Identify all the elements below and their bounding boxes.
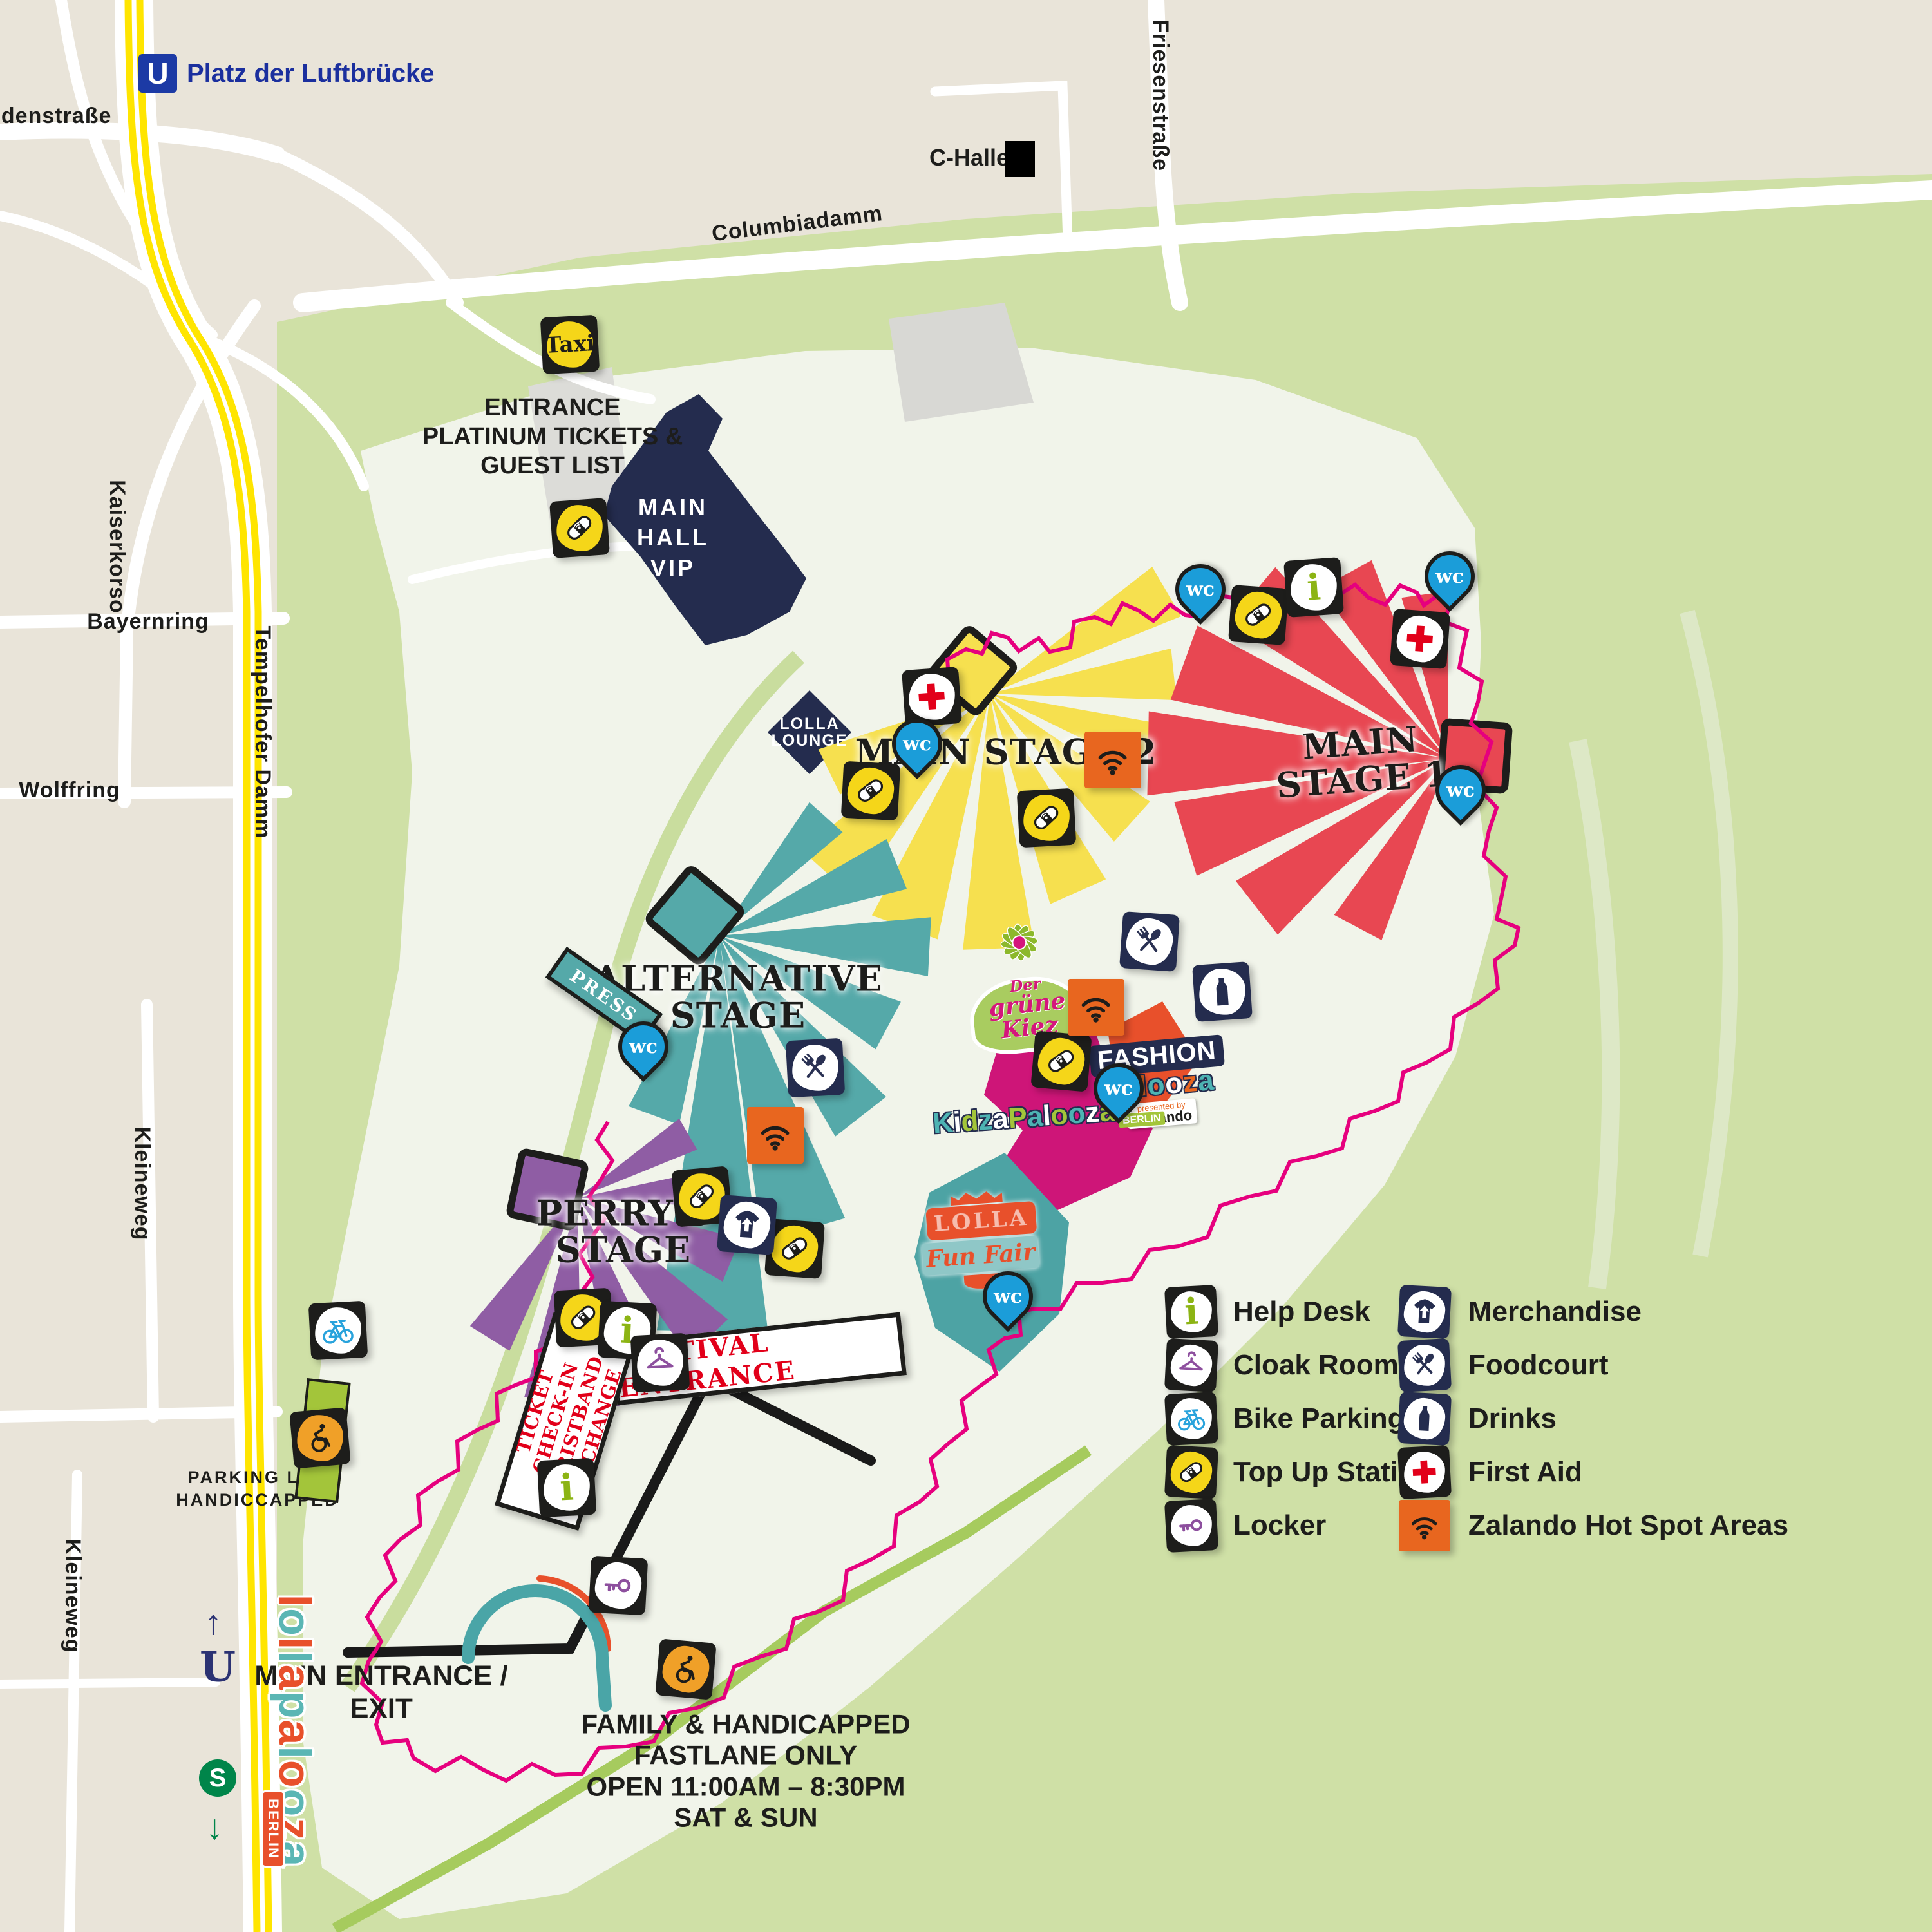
perrys-line2: STAGE — [536, 1231, 711, 1268]
taxi-icon: Taxi — [540, 315, 600, 374]
red-cross-glyph — [914, 679, 951, 715]
wheelchair-glyph — [301, 1419, 339, 1457]
fastlane-label: FAMILY & HANDICAPPED FASTLANE ONLY OPEN … — [581, 1709, 910, 1833]
c-halle-building — [1005, 141, 1035, 177]
bike-parking-icon — [1164, 1392, 1218, 1446]
flower-icon — [975, 913, 1063, 972]
alt-stage-line1: ALTERNATIVE — [593, 960, 883, 997]
foodcourt-icon — [1397, 1338, 1452, 1392]
vip-line2: HALL — [637, 523, 709, 553]
vip-line1: MAIN — [637, 493, 709, 523]
legend-label-cloak-room: Cloak Room — [1233, 1350, 1399, 1380]
bike-glyph — [320, 1312, 356, 1349]
info-glyph: i — [559, 1469, 574, 1506]
street-label-wolffring: Wolffring — [19, 779, 120, 802]
cloak-room-icon — [630, 1333, 690, 1392]
c-halle-label: C-Halle — [929, 146, 1009, 170]
street-label-friesenstrasse: Friesenstraße — [1148, 19, 1171, 171]
arrow-down-icon: ↓ — [206, 1810, 223, 1846]
help-desk-icon: i — [1283, 557, 1344, 618]
lounge-line2: LOUNGE — [772, 732, 848, 749]
entrance-platinum-line1: ENTRANCE — [422, 393, 683, 422]
fastlane-line4: SAT & SUN — [581, 1802, 910, 1833]
main-hall-vip-label: MAIN HALL VIP — [637, 493, 709, 583]
fastlane-line1: FAMILY & HANDICAPPED — [581, 1709, 910, 1739]
top-up-station-icon — [549, 498, 610, 558]
lounge-line1: LOLLA — [772, 715, 848, 732]
hotspot-icon — [747, 1107, 804, 1164]
tshirt-glyph — [729, 1207, 766, 1244]
fastlane-line3: OPEN 11:00AM – 8:30PM — [581, 1771, 910, 1802]
wifi-glyph — [1094, 741, 1132, 779]
street-label-kleineweg: Kleineweg — [130, 1126, 153, 1240]
help-desk-icon: i — [537, 1458, 596, 1517]
arrow-up-icon: ↑ — [205, 1605, 222, 1642]
main-stage1-label: MAIN STAGE 1 — [1273, 719, 1450, 804]
help-desk-icon: i — [1164, 1285, 1218, 1339]
lolla-lounge-label: LOLLA LOUNGE — [772, 715, 848, 750]
hotspot-icon — [1399, 1500, 1450, 1551]
foodcourt-icon — [1119, 911, 1180, 972]
legend-label-drinks: Drinks — [1468, 1404, 1557, 1434]
locker-icon — [589, 1556, 648, 1615]
ubahn-logo: U — [138, 54, 177, 93]
festival-map: Dudenstraße Kaiserkorso Bayernring Tempe… — [0, 0, 1932, 1932]
top-up-station-icon — [1228, 585, 1289, 645]
entrance-platinum-line2: PLATINUM TICKETS & — [422, 422, 683, 451]
street-label-kaiserkorso: Kaiserkorso — [105, 480, 128, 614]
hotspot-icon — [1084, 732, 1141, 788]
street-label-dudenstrasse: Dudenstraße — [0, 105, 111, 128]
fastlane-line2: FASTLANE ONLY — [581, 1740, 910, 1771]
legend-label-locker: Locker — [1233, 1511, 1326, 1540]
ubahn-station-label: Platz der Luftbrücke — [187, 60, 435, 87]
hotspot-icon — [1068, 979, 1124, 1036]
street-label-tempelhofer-damm: Tempelhofer Damm — [251, 626, 274, 839]
locker-icon — [1164, 1499, 1218, 1553]
ubahn-south-icon: U — [200, 1645, 236, 1689]
lollapalooza-berlin-tag: BERLIN — [263, 1792, 283, 1866]
info-glyph: i — [1305, 569, 1321, 605]
top-up-station-icon — [1164, 1445, 1218, 1499]
foodcourt-icon — [786, 1038, 845, 1097]
drinks-icon — [1192, 961, 1253, 1022]
wc-label: wc — [896, 723, 938, 765]
top-up-station-icon — [841, 761, 900, 820]
merchandise-icon — [717, 1195, 777, 1255]
wristband-glyph — [562, 510, 598, 547]
cutlery-glyph — [797, 1050, 833, 1086]
key-glyph — [600, 1567, 636, 1604]
top-up-station-icon — [1030, 1030, 1092, 1092]
drinks-icon — [1397, 1392, 1452, 1446]
handicapped-icon — [655, 1638, 716, 1700]
merchandise-icon — [1397, 1285, 1452, 1339]
bike-parking-icon — [308, 1301, 368, 1360]
first-aid-icon — [1397, 1445, 1452, 1499]
legend-label-hotspot: Zalando Hot Spot Areas — [1468, 1511, 1788, 1540]
taxi-label: Taxi — [544, 330, 595, 359]
entrance-platinum-label: ENTRANCE PLATINUM TICKETS & GUEST LIST — [422, 393, 683, 480]
hanger-glyph — [642, 1345, 678, 1381]
legend-label-foodcourt: Foodcourt — [1468, 1350, 1609, 1380]
legend-label-first-aid: First Aid — [1468, 1457, 1582, 1487]
legend-label-merchandise: Merchandise — [1468, 1297, 1642, 1327]
legend-label-help-desk: Help Desk — [1233, 1297, 1370, 1327]
handicapped-icon — [289, 1407, 350, 1468]
entrance-platinum-line3: GUEST LIST — [422, 451, 683, 480]
first-aid-icon — [902, 667, 962, 727]
top-up-station-icon — [1017, 788, 1076, 848]
street-label-bayernring: Bayernring — [87, 611, 209, 634]
street-label-kleineweg-south: Kleineweg — [61, 1539, 84, 1653]
bottle-glyph — [1204, 974, 1241, 1010]
sbahn-icon: S — [199, 1759, 236, 1797]
funfair-line1: LOLLA — [925, 1201, 1037, 1241]
cloak-room-icon — [1164, 1338, 1218, 1392]
funfair-line2: Fun Fair — [922, 1236, 1039, 1276]
legend-label-bike-parking: Bike Parking — [1233, 1404, 1405, 1434]
vip-line3: VIP — [637, 553, 709, 583]
first-aid-icon — [1390, 609, 1450, 669]
